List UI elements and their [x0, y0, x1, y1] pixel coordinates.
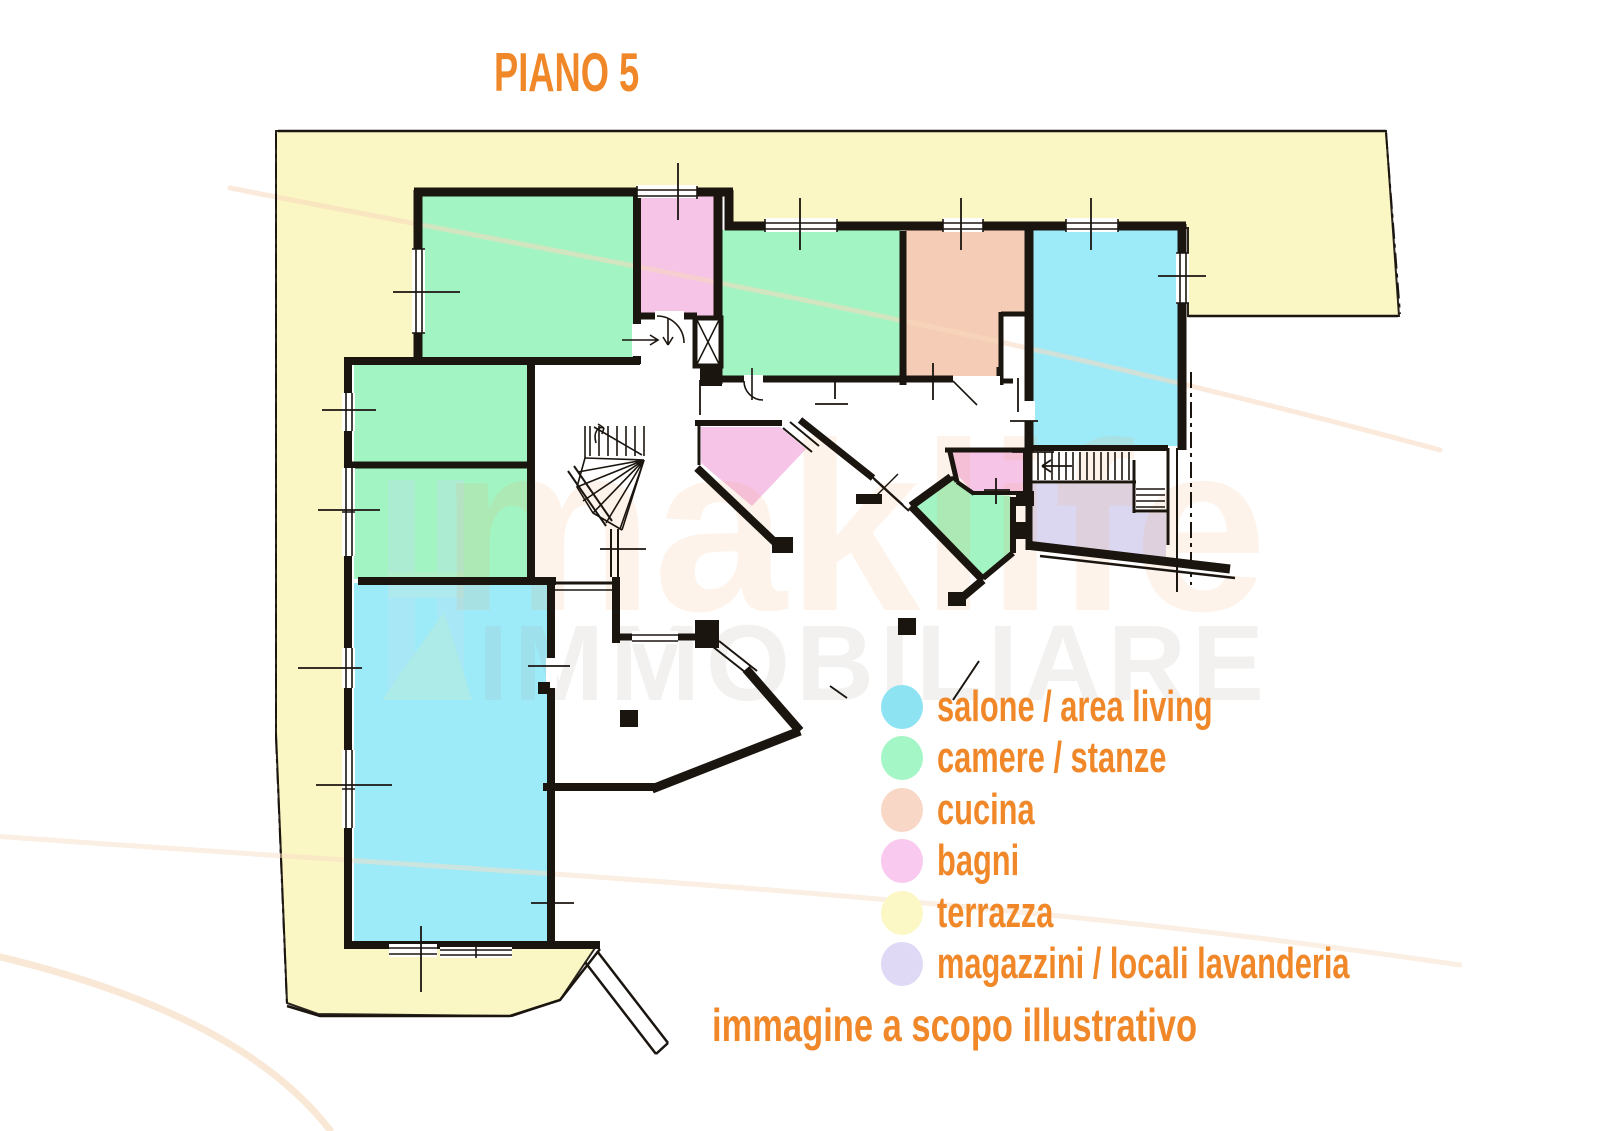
- legend-item-cucina: cucina: [880, 784, 1526, 836]
- legend-label-camere: camere / stanze: [937, 733, 1166, 783]
- legend: salone / area living camere / stanze cuc…: [880, 681, 1526, 990]
- room-camera-1: [420, 194, 635, 360]
- legend-swatch-magazzini: [880, 941, 924, 987]
- legend-label-salone: salone / area living: [937, 682, 1213, 732]
- legend-label-magazzini: magazzini / locali lavanderia: [937, 939, 1350, 989]
- legend-label-cucina: cucina: [937, 785, 1035, 835]
- legend-swatch-cucina: [880, 787, 924, 833]
- legend-swatch-camere: [880, 735, 924, 781]
- legend-item-salone: salone / area living: [880, 681, 1526, 733]
- watermark-swoosh-3: [0, 950, 330, 1130]
- caption-text: immagine a scopo illustrativo: [712, 998, 1197, 1052]
- legend-item-terrazza: terrazza: [880, 887, 1526, 939]
- legend-swatch-bagni: [880, 838, 924, 884]
- legend-swatch-terrazza: [880, 890, 924, 936]
- page-title: PIANO 5: [494, 40, 714, 104]
- legend-item-magazzini: magazzini / locali lavanderia: [880, 939, 1526, 991]
- legend-swatch-salone: [880, 684, 924, 730]
- legend-label-bagni: bagni: [937, 836, 1019, 886]
- floorplan-page: maklife IMMOBILIARE: [0, 0, 1600, 1131]
- caption: immagine a scopo illustrativo: [712, 998, 1359, 1052]
- legend-item-bagni: bagni: [880, 836, 1526, 888]
- page-title-text: PIANO 5: [494, 40, 639, 104]
- legend-item-camere: camere / stanze: [880, 733, 1526, 785]
- room-cucina: [905, 230, 1027, 379]
- room-camera-2: [720, 230, 901, 379]
- legend-label-terrazza: terrazza: [937, 888, 1053, 938]
